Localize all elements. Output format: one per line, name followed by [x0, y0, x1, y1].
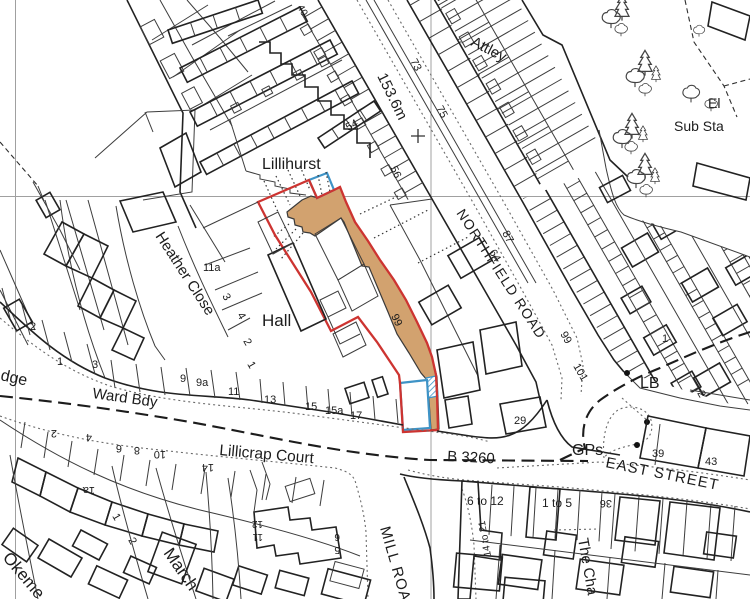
svg-text:29: 29	[514, 415, 526, 427]
svg-text:4: 4	[86, 431, 92, 443]
svg-text:12: 12	[251, 518, 263, 529]
svg-text:6: 6	[116, 442, 122, 454]
svg-text:11: 11	[228, 386, 239, 398]
svg-text:2: 2	[51, 427, 57, 439]
svg-text:15: 15	[305, 401, 317, 413]
svg-text:6: 6	[334, 531, 340, 542]
svg-text:Sub Sta: Sub Sta	[674, 118, 724, 134]
svg-text:11a: 11a	[203, 262, 221, 274]
svg-text:3: 3	[92, 359, 98, 371]
svg-text:13: 13	[264, 394, 276, 406]
svg-text:17: 17	[350, 410, 362, 422]
svg-text:GPs: GPs	[572, 442, 603, 459]
svg-text:2: 2	[30, 321, 36, 333]
svg-text:Lillihurst: Lillihurst	[262, 156, 321, 173]
svg-text:5: 5	[334, 544, 340, 555]
svg-text:1 to 5: 1 to 5	[542, 496, 572, 510]
svg-text:39: 39	[652, 448, 664, 460]
svg-text:15a: 15a	[325, 405, 344, 417]
svg-text:1: 1	[57, 356, 63, 368]
svg-text:11: 11	[252, 531, 263, 542]
svg-text:9a: 9a	[196, 377, 209, 389]
svg-text:B 3260: B 3260	[447, 448, 495, 467]
svg-text:Hall: Hall	[262, 311, 291, 330]
svg-text:9: 9	[180, 373, 186, 385]
svg-text:LB: LB	[640, 375, 660, 392]
svg-text:14: 14	[202, 461, 214, 473]
svg-text:6 to 12: 6 to 12	[467, 494, 504, 508]
svg-text:1: 1	[662, 333, 668, 345]
svg-text:10: 10	[154, 448, 166, 460]
svg-text:El: El	[708, 95, 720, 111]
svg-text:36: 36	[600, 497, 612, 509]
svg-text:1a: 1a	[82, 484, 95, 496]
svg-text:8: 8	[134, 444, 140, 456]
svg-text:43: 43	[705, 456, 717, 468]
